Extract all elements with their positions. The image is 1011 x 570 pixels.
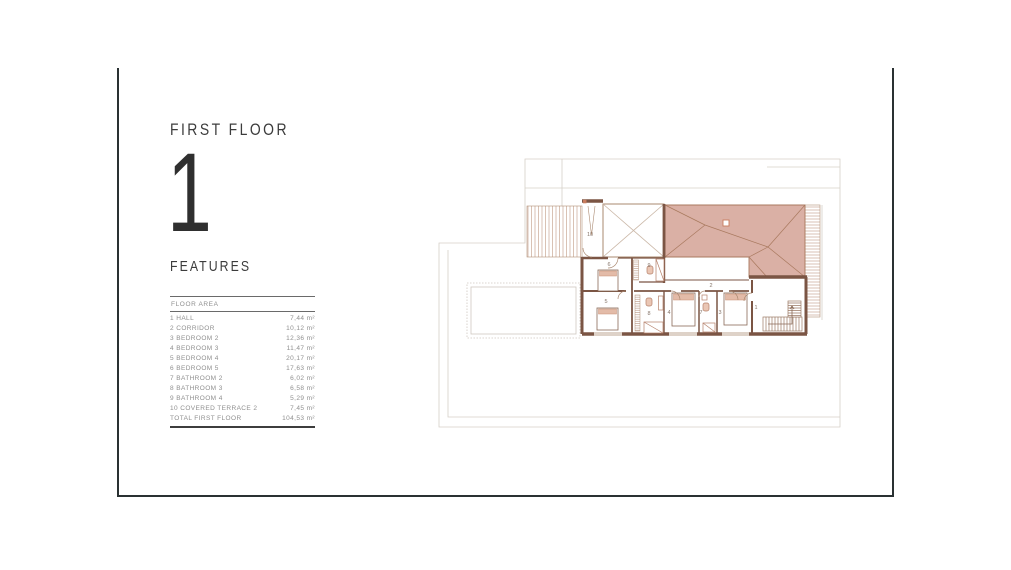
room-name: 4 BEDROOM 3 xyxy=(170,344,219,354)
room-label-bathroom2: 7 xyxy=(699,310,702,316)
floor-plan: 1 2 3 4 5 6 7 8 9 10 xyxy=(422,140,892,440)
table-bottom-rule xyxy=(170,426,315,428)
table-row: 1 HALL 7,44 m² xyxy=(170,314,315,324)
room-label-bathroom4: 9 xyxy=(647,263,650,269)
floor-area-table: FLOOR AREA 1 HALL 7,44 m² 2 CORRIDOR 10,… xyxy=(170,296,315,428)
room-name: 3 BEDROOM 2 xyxy=(170,334,219,344)
room-area-value: 6,02 m² xyxy=(290,374,315,384)
page: FIRST FLOOR 1 FEATURES FLOOR AREA 1 HALL… xyxy=(0,0,1011,570)
floor-number: 1 xyxy=(167,137,212,249)
room-label-hall: 1 xyxy=(754,305,757,311)
table-row: 9 BATHROOM 4 5,29 m² xyxy=(170,394,315,404)
pool-outline xyxy=(467,283,580,338)
table-row: 5 BEDROOM 4 20,17 m² xyxy=(170,354,315,364)
room-label-corridor: 2 xyxy=(709,283,712,289)
room-label-bedroom3: 4 xyxy=(667,310,670,316)
void-room xyxy=(603,204,664,257)
room-label-bedroom2: 3 xyxy=(718,310,721,316)
pergola-hatch-left xyxy=(527,206,582,257)
presentation-card: FIRST FLOOR 1 FEATURES FLOOR AREA 1 HALL… xyxy=(117,68,894,497)
room-area-value: 7,45 m² xyxy=(290,404,315,414)
room-label-bedroom4: 5 xyxy=(604,299,607,305)
table-row: 7 BATHROOM 2 6,02 m² xyxy=(170,374,315,384)
room-name: TOTAL FIRST FLOOR xyxy=(170,414,242,424)
table-row: 8 BATHROOM 3 6,58 m² xyxy=(170,384,315,394)
room-name: 6 BEDROOM 5 xyxy=(170,364,219,374)
floor-plan-drawing: 1 2 3 4 5 6 7 8 9 10 xyxy=(422,140,892,440)
chimney xyxy=(723,220,729,226)
room-name: 10 COVERED TERRACE 2 xyxy=(170,404,257,414)
table-total-row: TOTAL FIRST FLOOR 104,53 m² xyxy=(170,414,315,424)
room-name: 8 BATHROOM 3 xyxy=(170,384,223,394)
room-name: 9 BATHROOM 4 xyxy=(170,394,223,404)
wardrobes xyxy=(634,260,641,331)
table-row: 3 BEDROOM 2 12,36 m² xyxy=(170,334,315,344)
windows xyxy=(594,332,749,337)
terrace-strip xyxy=(583,200,595,235)
stairs xyxy=(763,301,802,331)
room-name: 5 BEDROOM 4 xyxy=(170,354,219,364)
room-label-bedroom5: 6 xyxy=(607,262,610,268)
room-name: 7 BATHROOM 2 xyxy=(170,374,223,384)
plot-outline xyxy=(439,159,840,427)
table-row: 4 BEDROOM 3 11,47 m² xyxy=(170,344,315,354)
features-heading: FEATURES xyxy=(170,258,251,275)
table-header: FLOOR AREA xyxy=(170,297,315,311)
room-area-value: 12,36 m² xyxy=(286,334,315,344)
room-area-value: 10,12 m² xyxy=(286,324,315,334)
table-row: 6 BEDROOM 5 17,63 m² xyxy=(170,364,315,374)
floor-area-rows: 1 HALL 7,44 m² 2 CORRIDOR 10,12 m² 3 BED… xyxy=(170,312,315,426)
room-label-terrace: 10 xyxy=(587,232,593,238)
table-row: 2 CORRIDOR 10,12 m² xyxy=(170,324,315,334)
room-area-value: 20,17 m² xyxy=(286,354,315,364)
beds xyxy=(597,270,747,330)
room-area-value: 7,44 m² xyxy=(290,314,315,324)
room-label-bathroom3: 8 xyxy=(647,311,650,317)
room-name: 2 CORRIDOR xyxy=(170,324,215,334)
roof xyxy=(665,205,805,277)
room-area-value: 104,53 m² xyxy=(282,414,315,424)
room-name: 1 HALL xyxy=(170,314,194,324)
room-area-value: 5,29 m² xyxy=(290,394,315,404)
table-row: 10 COVERED TERRACE 2 7,45 m² xyxy=(170,404,315,414)
room-area-value: 6,58 m² xyxy=(290,384,315,394)
room-area-value: 17,63 m² xyxy=(286,364,315,374)
room-area-value: 11,47 m² xyxy=(287,344,315,354)
